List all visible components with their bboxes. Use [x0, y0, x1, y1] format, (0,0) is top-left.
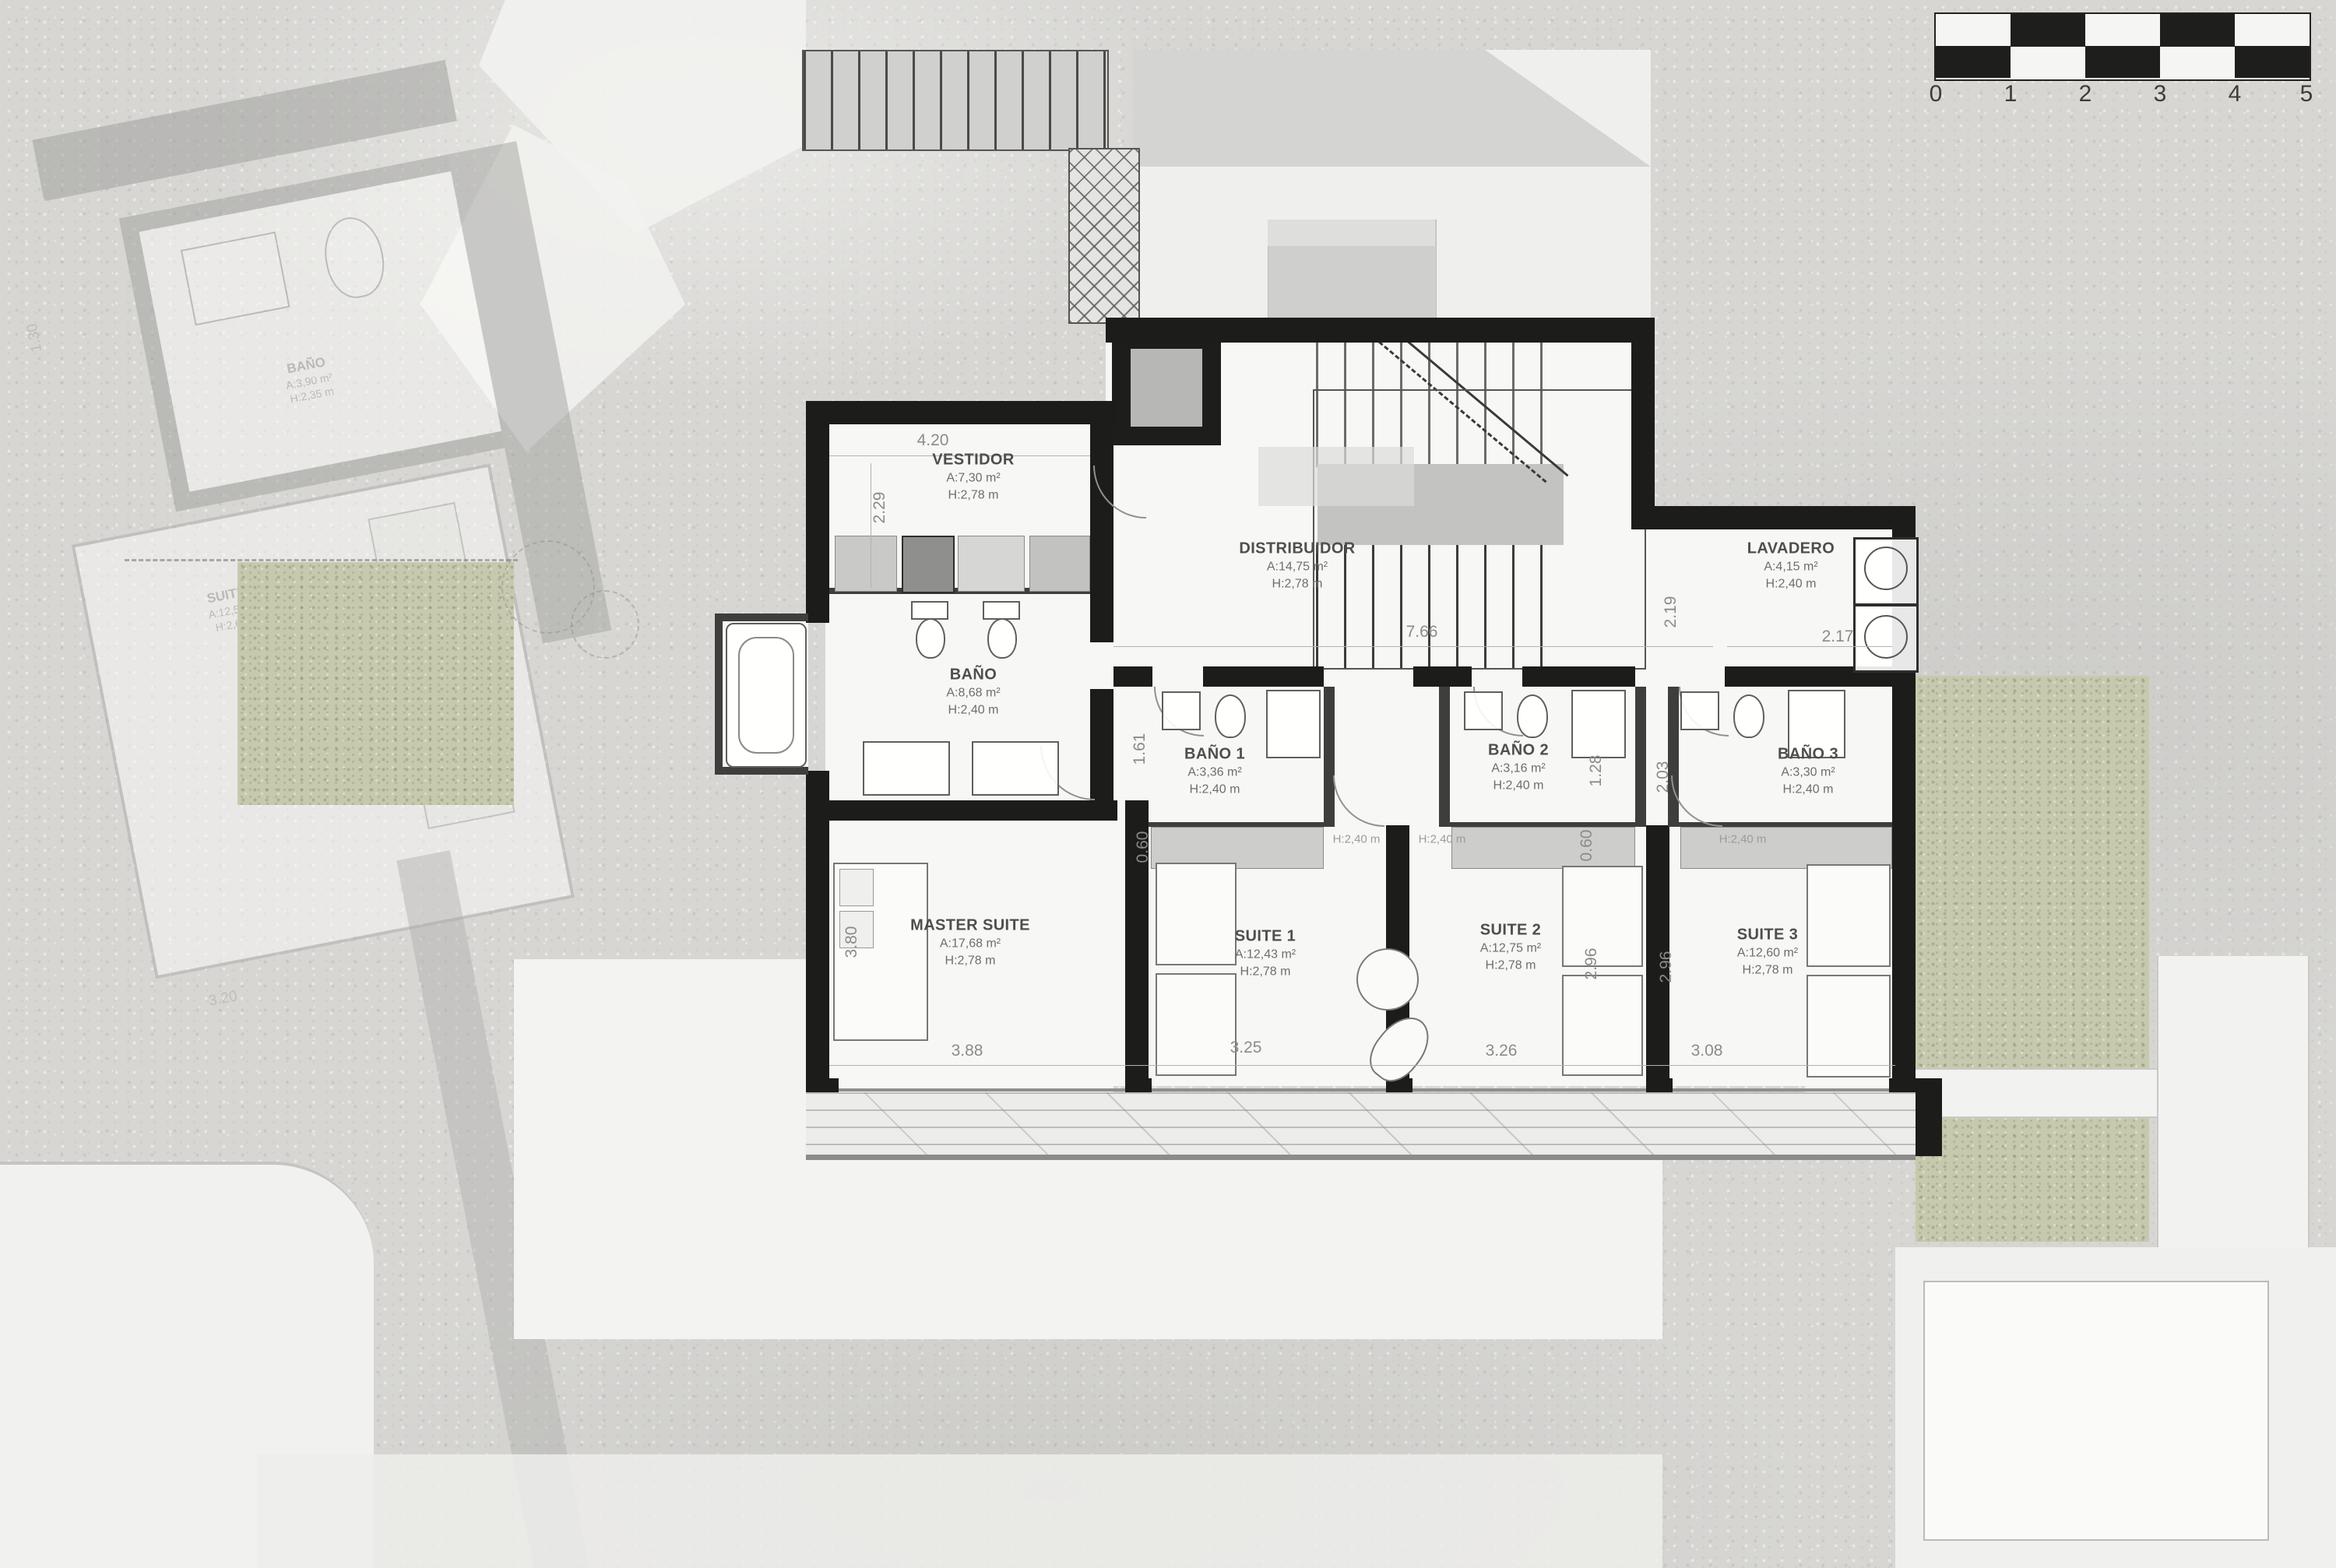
- wall-segment: [806, 800, 1117, 821]
- room-area: A:3,16 m²: [1488, 761, 1549, 777]
- closet-block: [958, 536, 1025, 592]
- room-height: H:2,40 m: [1184, 781, 1245, 797]
- wall-segment: [1090, 596, 1113, 642]
- dim-label: 3.08: [1691, 1042, 1723, 1060]
- hall-floor-shade: [1258, 447, 1414, 506]
- skylight-bed-head: [1268, 220, 1435, 246]
- dim-label: 3.88: [952, 1042, 983, 1060]
- toilet-icon: [916, 618, 945, 659]
- closet-block: [902, 536, 955, 593]
- scale-bar-number: 2: [2072, 81, 2099, 107]
- bidet-icon: [983, 601, 1020, 620]
- scale-bar-cell: [2011, 14, 2085, 46]
- bidet-icon: [987, 618, 1017, 659]
- toilet-icon: [911, 601, 948, 620]
- wall-segment: [806, 771, 829, 1106]
- terrace-southeast-border: [1923, 1281, 2269, 1541]
- room-area: A:14,75 m²: [1239, 559, 1355, 575]
- scale-bar-number: 0: [1923, 81, 1949, 107]
- property-dashed-line: [125, 559, 518, 561]
- deck-edge: [806, 1155, 1916, 1160]
- dim-label: 1.61: [1131, 733, 1149, 765]
- dim-label: 3.26: [1486, 1042, 1518, 1060]
- bed-icon-suite1: [1156, 973, 1237, 1076]
- room-name: SUITE 3: [1737, 925, 1798, 945]
- dim-label: 0.60: [1134, 831, 1152, 863]
- room-area: A:12,43 m²: [1235, 947, 1296, 963]
- wall-segment: [1631, 318, 1655, 529]
- room-label-suite2: SUITE 2 A:12,75 m² H:2,78 m: [1480, 920, 1541, 974]
- dim-label: 2.17: [1822, 628, 1854, 646]
- tub-nook-wall: [715, 613, 723, 773]
- room-label-bano1: BAÑO 1 A:3,36 m² H:2,40 m: [1184, 744, 1245, 798]
- dimension-line: [1113, 646, 1713, 647]
- room-area: A:12,75 m²: [1480, 940, 1541, 957]
- room-name: DISTRIBUIDOR: [1239, 539, 1355, 559]
- scale-bar: [1934, 12, 2311, 81]
- lintel-label: H:2,40 m: [1419, 833, 1466, 846]
- dimension-line: [829, 1065, 1895, 1066]
- room-label-distribuidor: DISTRIBUIDOR A:14,75 m² H:2,78 m: [1239, 539, 1355, 592]
- dim-label: 2.03: [1654, 761, 1673, 793]
- room-name: BAÑO 2: [1488, 740, 1549, 761]
- room-height: H:2,78 m: [1737, 962, 1798, 978]
- bed-icon-suite2: [1562, 975, 1643, 1076]
- closet-block: [1029, 536, 1090, 592]
- bathtub-inner: [738, 637, 794, 754]
- table-icon: [1356, 948, 1419, 1011]
- dryer-drum: [1864, 615, 1908, 659]
- wall-segment: [1668, 687, 1679, 827]
- wardrobe-suite3: [1680, 827, 1892, 869]
- wall-segment: [1635, 687, 1646, 827]
- wall-segment: [1324, 687, 1335, 827]
- neighbor-dim-label: 3.20: [207, 988, 239, 1011]
- dimension-line: [1727, 646, 1892, 647]
- garden-right: [1916, 676, 2149, 1242]
- lintel-label: H:2,40 m: [1719, 833, 1767, 846]
- dim-label: 2.29: [871, 492, 889, 524]
- elevator-car: [1131, 349, 1202, 427]
- toilet-icon: [1733, 694, 1764, 738]
- sink-icon: [1464, 691, 1503, 730]
- room-label-master-suite: MASTER SUITE A:17,68 m² H:2,78 m: [910, 916, 1030, 969]
- wall-segment: [1631, 506, 1916, 529]
- room-label-bano3: BAÑO 3 A:3,30 m² H:2,40 m: [1778, 744, 1838, 798]
- room-height: H:2,40 m: [1778, 781, 1838, 797]
- room-name: SUITE 2: [1480, 920, 1541, 940]
- dim-label: 2.96: [1657, 951, 1676, 983]
- room-name: BAÑO 3: [1778, 744, 1838, 765]
- room-area: A:17,68 m²: [910, 936, 1030, 952]
- room-height: H:2,78 m: [910, 952, 1030, 969]
- wall-segment: [1113, 666, 1152, 687]
- dim-label: 0.60: [1578, 830, 1596, 862]
- scale-bar-number: 5: [2293, 81, 2320, 107]
- room-area: A:8,68 m²: [946, 685, 1000, 701]
- wall-segment: [1413, 666, 1472, 687]
- toilet-icon: [1517, 694, 1548, 738]
- glass-facade-line: [829, 1088, 1896, 1092]
- room-name: BAÑO 1: [1184, 744, 1245, 765]
- scale-bar-number: 1: [1997, 81, 2024, 107]
- tub-nook-wall: [715, 613, 808, 621]
- dimension-line: [871, 463, 871, 588]
- room-area: A:3,30 m²: [1778, 765, 1838, 781]
- shower-icon: [1571, 690, 1626, 758]
- bed-icon-suite3: [1807, 864, 1891, 967]
- sink-icon: [863, 741, 950, 796]
- room-label-bano2: BAÑO 2 A:3,16 m² H:2,40 m: [1488, 740, 1549, 794]
- dim-label: 4.20: [917, 431, 949, 450]
- wall-segment: [806, 401, 829, 623]
- dim-label: 2.96: [1582, 948, 1601, 980]
- room-height: H:2,78 m: [1235, 963, 1296, 979]
- closet-block: [835, 536, 897, 592]
- entry-steps-hatched: [802, 50, 1109, 151]
- wall-segment: [1522, 666, 1635, 687]
- room-name: BAÑO: [946, 665, 1000, 685]
- scale-bar-midline: [1936, 46, 2310, 47]
- bed-pillow: [839, 869, 874, 906]
- room-label-lavadero: LAVADERO A:4,15 m² H:2,40 m: [1747, 539, 1835, 592]
- bed-icon-suite3: [1807, 975, 1891, 1078]
- wall-segment: [1203, 666, 1324, 687]
- room-area: A:4,15 m²: [1747, 559, 1835, 575]
- stairwell-guardrail: [1313, 389, 1646, 670]
- scale-bar-cell: [2085, 46, 2160, 78]
- room-height: H:2,40 m: [946, 701, 1000, 718]
- room-label-vestidor: VESTIDOR A:7,30 m² H:2,78 m: [932, 450, 1014, 504]
- room-area: A:12,60 m²: [1737, 945, 1798, 962]
- dim-label: 1.28: [1587, 755, 1606, 787]
- room-name: VESTIDOR: [932, 450, 1014, 470]
- lawn-band-south: [257, 1454, 1662, 1568]
- room-height: H:2,78 m: [1480, 957, 1541, 973]
- room-height: H:2,40 m: [1747, 575, 1835, 592]
- sink-icon: [1680, 691, 1719, 730]
- room-name: MASTER SUITE: [910, 916, 1030, 936]
- room-height: H:2,40 m: [1488, 777, 1549, 793]
- wardrobe-suite2: [1451, 827, 1635, 869]
- dim-label: 3.25: [1230, 1039, 1262, 1057]
- bed-icon-suite2: [1562, 866, 1643, 967]
- room-name: LAVADERO: [1747, 539, 1835, 559]
- wall-segment: [1106, 318, 1655, 343]
- room-height: H:2,78 m: [1239, 575, 1355, 592]
- scale-bar-cell: [2160, 14, 2235, 46]
- bed-icon-suite1: [1156, 863, 1237, 965]
- scale-bar-cell: [2235, 46, 2310, 78]
- dim-label: 2.19: [1662, 596, 1680, 628]
- room-label-suite3: SUITE 3 A:12,60 m² H:2,78 m: [1737, 925, 1798, 979]
- lintel-label: H:2,40 m: [1333, 833, 1381, 846]
- scale-bar-number: 3: [2147, 81, 2173, 107]
- room-name: SUITE 1: [1235, 926, 1296, 947]
- dim-label: 7.66: [1406, 623, 1438, 642]
- garden-left: [237, 562, 514, 805]
- toilet-icon: [1215, 694, 1246, 738]
- room-area: A:3,36 m²: [1184, 765, 1245, 781]
- room-label-suite1: SUITE 1 A:12,43 m² H:2,78 m: [1235, 926, 1296, 980]
- room-height: H:2,78 m: [932, 487, 1014, 503]
- neighbor-dim-label: 1.30: [24, 322, 47, 354]
- wall-segment: [806, 401, 1117, 424]
- neighbor-bath-label: BAÑO A:3,90 m² H:2,35 m: [281, 353, 336, 406]
- sink-icon: [1162, 691, 1201, 730]
- floor-plan-canvas: BAÑO A:3,90 m² H:2,35 m SUITE 5 A:12,50 …: [0, 0, 2336, 1568]
- washer-drum: [1864, 547, 1908, 590]
- grating-crosshatch: [1068, 148, 1140, 324]
- tree-icon: [571, 590, 639, 659]
- room-area: A:7,30 m²: [932, 470, 1014, 487]
- scale-bar-cell: [1936, 46, 2011, 78]
- shower-icon: [1266, 690, 1321, 758]
- room-label-bano: BAÑO A:8,68 m² H:2,40 m: [946, 665, 1000, 719]
- scale-bar-number: 4: [2222, 81, 2248, 107]
- sink-icon: [972, 741, 1059, 796]
- dim-label: 3.80: [843, 926, 861, 958]
- deck-terrace: [806, 1092, 1916, 1156]
- wall-segment: [1439, 687, 1450, 827]
- tub-nook-wall: [715, 767, 808, 775]
